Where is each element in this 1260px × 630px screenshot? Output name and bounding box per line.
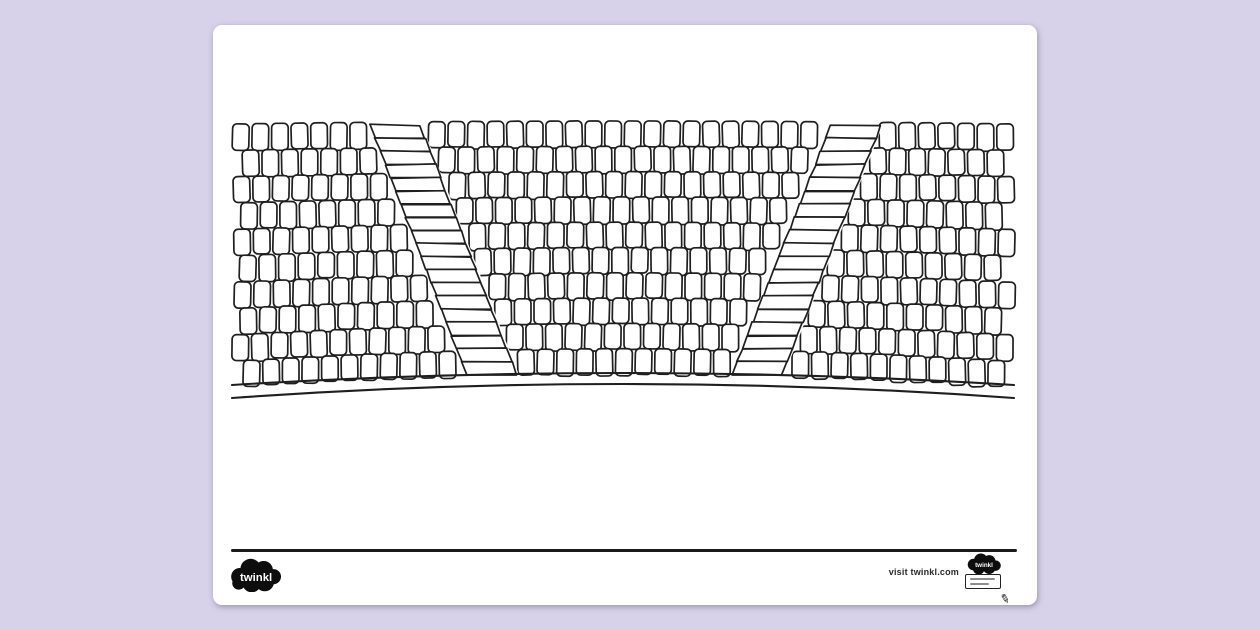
amphitheatre-illustration: [213, 25, 1037, 605]
visit-twinkl-text: visit twinkl.com: [773, 567, 959, 577]
twinkl-logo: twinkl: [229, 557, 281, 592]
badge-logo-text: twinkl: [975, 562, 993, 569]
badge-label-box: [965, 574, 1001, 589]
footer-divider: [231, 549, 1017, 552]
twinkl-logo-text: twinkl: [240, 572, 272, 584]
badge-text-line: [970, 583, 989, 585]
quality-standard-badge: twinkl ✎: [963, 553, 1005, 601]
worksheet-page: twinkl visit twinkl.com twinkl ✎: [213, 25, 1037, 605]
screenshot-root: twinkl visit twinkl.com twinkl ✎: [0, 0, 1260, 630]
badge-twinkl-cloud-icon: twinkl: [966, 553, 1002, 574]
badge-text-line: [970, 578, 995, 580]
